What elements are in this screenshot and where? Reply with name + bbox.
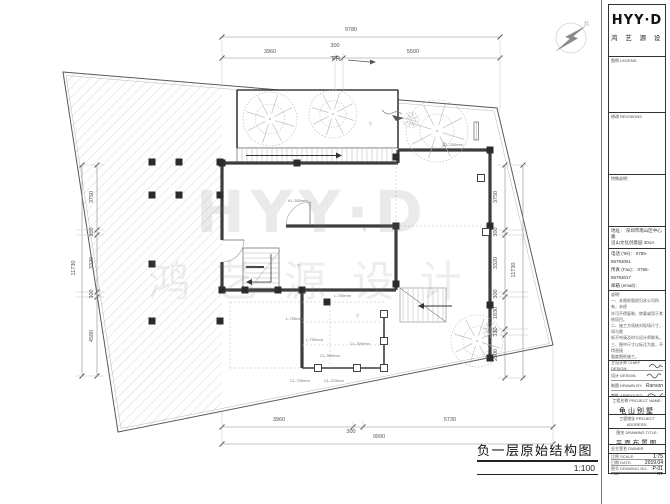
note-line: 许可不得复制、转载或用于其他项目。 xyxy=(611,311,663,323)
legend-label: 图例 LEGEND xyxy=(611,58,637,63)
contact-section: 电话 (Tel)： 0755-86793061 传真 (Fax)： 0755-8… xyxy=(609,249,665,291)
floor-plan-canvas: 北 xyxy=(0,0,600,504)
signature-scribble xyxy=(645,372,663,379)
ramp-arrow xyxy=(348,60,370,62)
drawing-sheet: HYY·D 鸿艺源设计 xyxy=(0,0,670,504)
north-label: 北 xyxy=(584,20,589,27)
project-address-section: 工程地址 PROJECT ADDRESS: 深圳 xyxy=(609,415,665,429)
logo-section: HYY·D 鸿 艺 源 设 计 xyxy=(609,5,665,57)
signature-scribble xyxy=(647,362,663,369)
address-line: 沿山文化创意园 301A xyxy=(611,240,663,246)
door-arc xyxy=(222,240,244,262)
hyyd-logo: HYY·D xyxy=(611,13,663,28)
meta-row: 页码 01 xyxy=(611,473,663,475)
project-name-section: 工程名称 PROJECT NAME: 龟山别墅 xyxy=(609,397,665,415)
signature-label: 设计 DESIGN: xyxy=(611,373,637,379)
scale-label: 比例 SCALE: xyxy=(611,454,634,460)
revisions-section: 修改 REVISIONS xyxy=(609,113,665,175)
courtyard xyxy=(237,90,398,148)
page-value: 01 xyxy=(657,472,663,475)
date-value: 2019.04 xyxy=(645,460,663,466)
project-name-label: 工程名称 PROJECT NAME: xyxy=(611,398,663,404)
contact-tel: 电话 (Tel)： 0755-86793061 xyxy=(611,250,663,266)
revisions-label: 修改 REVISIONS xyxy=(611,114,642,119)
drawing-title-label: 图名 DRAWING TITLE: xyxy=(611,430,663,436)
hatched-area xyxy=(63,72,222,432)
page-label: 页码 xyxy=(611,472,619,475)
sheet-divider xyxy=(601,0,602,504)
signatures-section: 主设计师 CHIEF DESIGN: 设计 DESIGN: 制图 DRAWN B… xyxy=(609,361,665,397)
meta-section: 比例 SCALE: 1:75 日期 DATE: 2019.04 图号 DRAWI… xyxy=(609,454,665,475)
scale-value: 1:75 xyxy=(653,454,663,460)
note-line: 一、本图纸版权归本公司所有，未经 xyxy=(611,298,663,310)
special-notes-label: 特殊说明： xyxy=(611,176,631,181)
signature-row: 制图 DRAWN BY: Ranson xyxy=(611,381,663,391)
drawing-title-section: 图名 DRAWING TITLE: 平面布置图 xyxy=(609,429,665,445)
signature-label: 制图 DRAWN BY: xyxy=(611,383,642,389)
signature-row: 主设计师 CHIEF DESIGN: xyxy=(611,361,663,371)
note-line: 纸不符请及时与设计师联系。 xyxy=(611,335,663,341)
note-line: 二、施工方须核对现场尺寸，如与图 xyxy=(611,323,663,335)
notes-section: 说明： 一、本图纸版权归本公司所有，未经 许可不得复制、转载或用于其他项目。 二… xyxy=(609,291,665,361)
contact-email: 邮箱 (email)： shenzhenhyyd@163.com xyxy=(611,282,663,291)
signature-value: Ranson xyxy=(646,383,663,389)
address-section: 地址： 深圳市南山区中心路 沿山文化创意园 301A xyxy=(609,227,665,249)
address-line: 地址： 深圳市南山区中心路 xyxy=(611,228,663,240)
legend-section: 图例 LEGEND xyxy=(609,57,665,113)
stair-treads xyxy=(242,149,443,321)
signature-row: 设计 DESIGN: xyxy=(611,371,663,381)
special-notes-section: 特殊说明： xyxy=(609,175,665,227)
project-name: 龟山别墅 xyxy=(611,406,663,415)
titleblock-drawing-title: 平面布置图 xyxy=(611,437,663,445)
door-arc xyxy=(286,202,310,226)
hyyd-logo-sub: 鸿 艺 源 设 计 xyxy=(611,32,663,42)
ramp-arrowhead xyxy=(370,60,376,65)
date-label: 日期 DATE: xyxy=(611,460,632,466)
owner-signature-label: 业主签名 OWNER SIGNATURE: xyxy=(611,446,643,454)
signature-label: 主设计师 CHIEF DESIGN: xyxy=(611,361,647,371)
mid-stairs xyxy=(243,248,279,292)
project-address-label: 工程地址 PROJECT ADDRESS: xyxy=(611,416,663,427)
title-block: HYY·D 鸿 艺 源 设 计 图例 LEGEND 修改 REVISIONS 特… xyxy=(608,4,666,474)
contact-fax: 传真 (Fax)： 0755-86793017 xyxy=(611,266,663,282)
drawing-no-value: P-01 xyxy=(652,466,663,472)
note-line: 三、图中尺寸以标注为准，不得直接 xyxy=(611,342,663,354)
owner-signature-section: 业主签名 OWNER SIGNATURE: xyxy=(609,445,665,454)
